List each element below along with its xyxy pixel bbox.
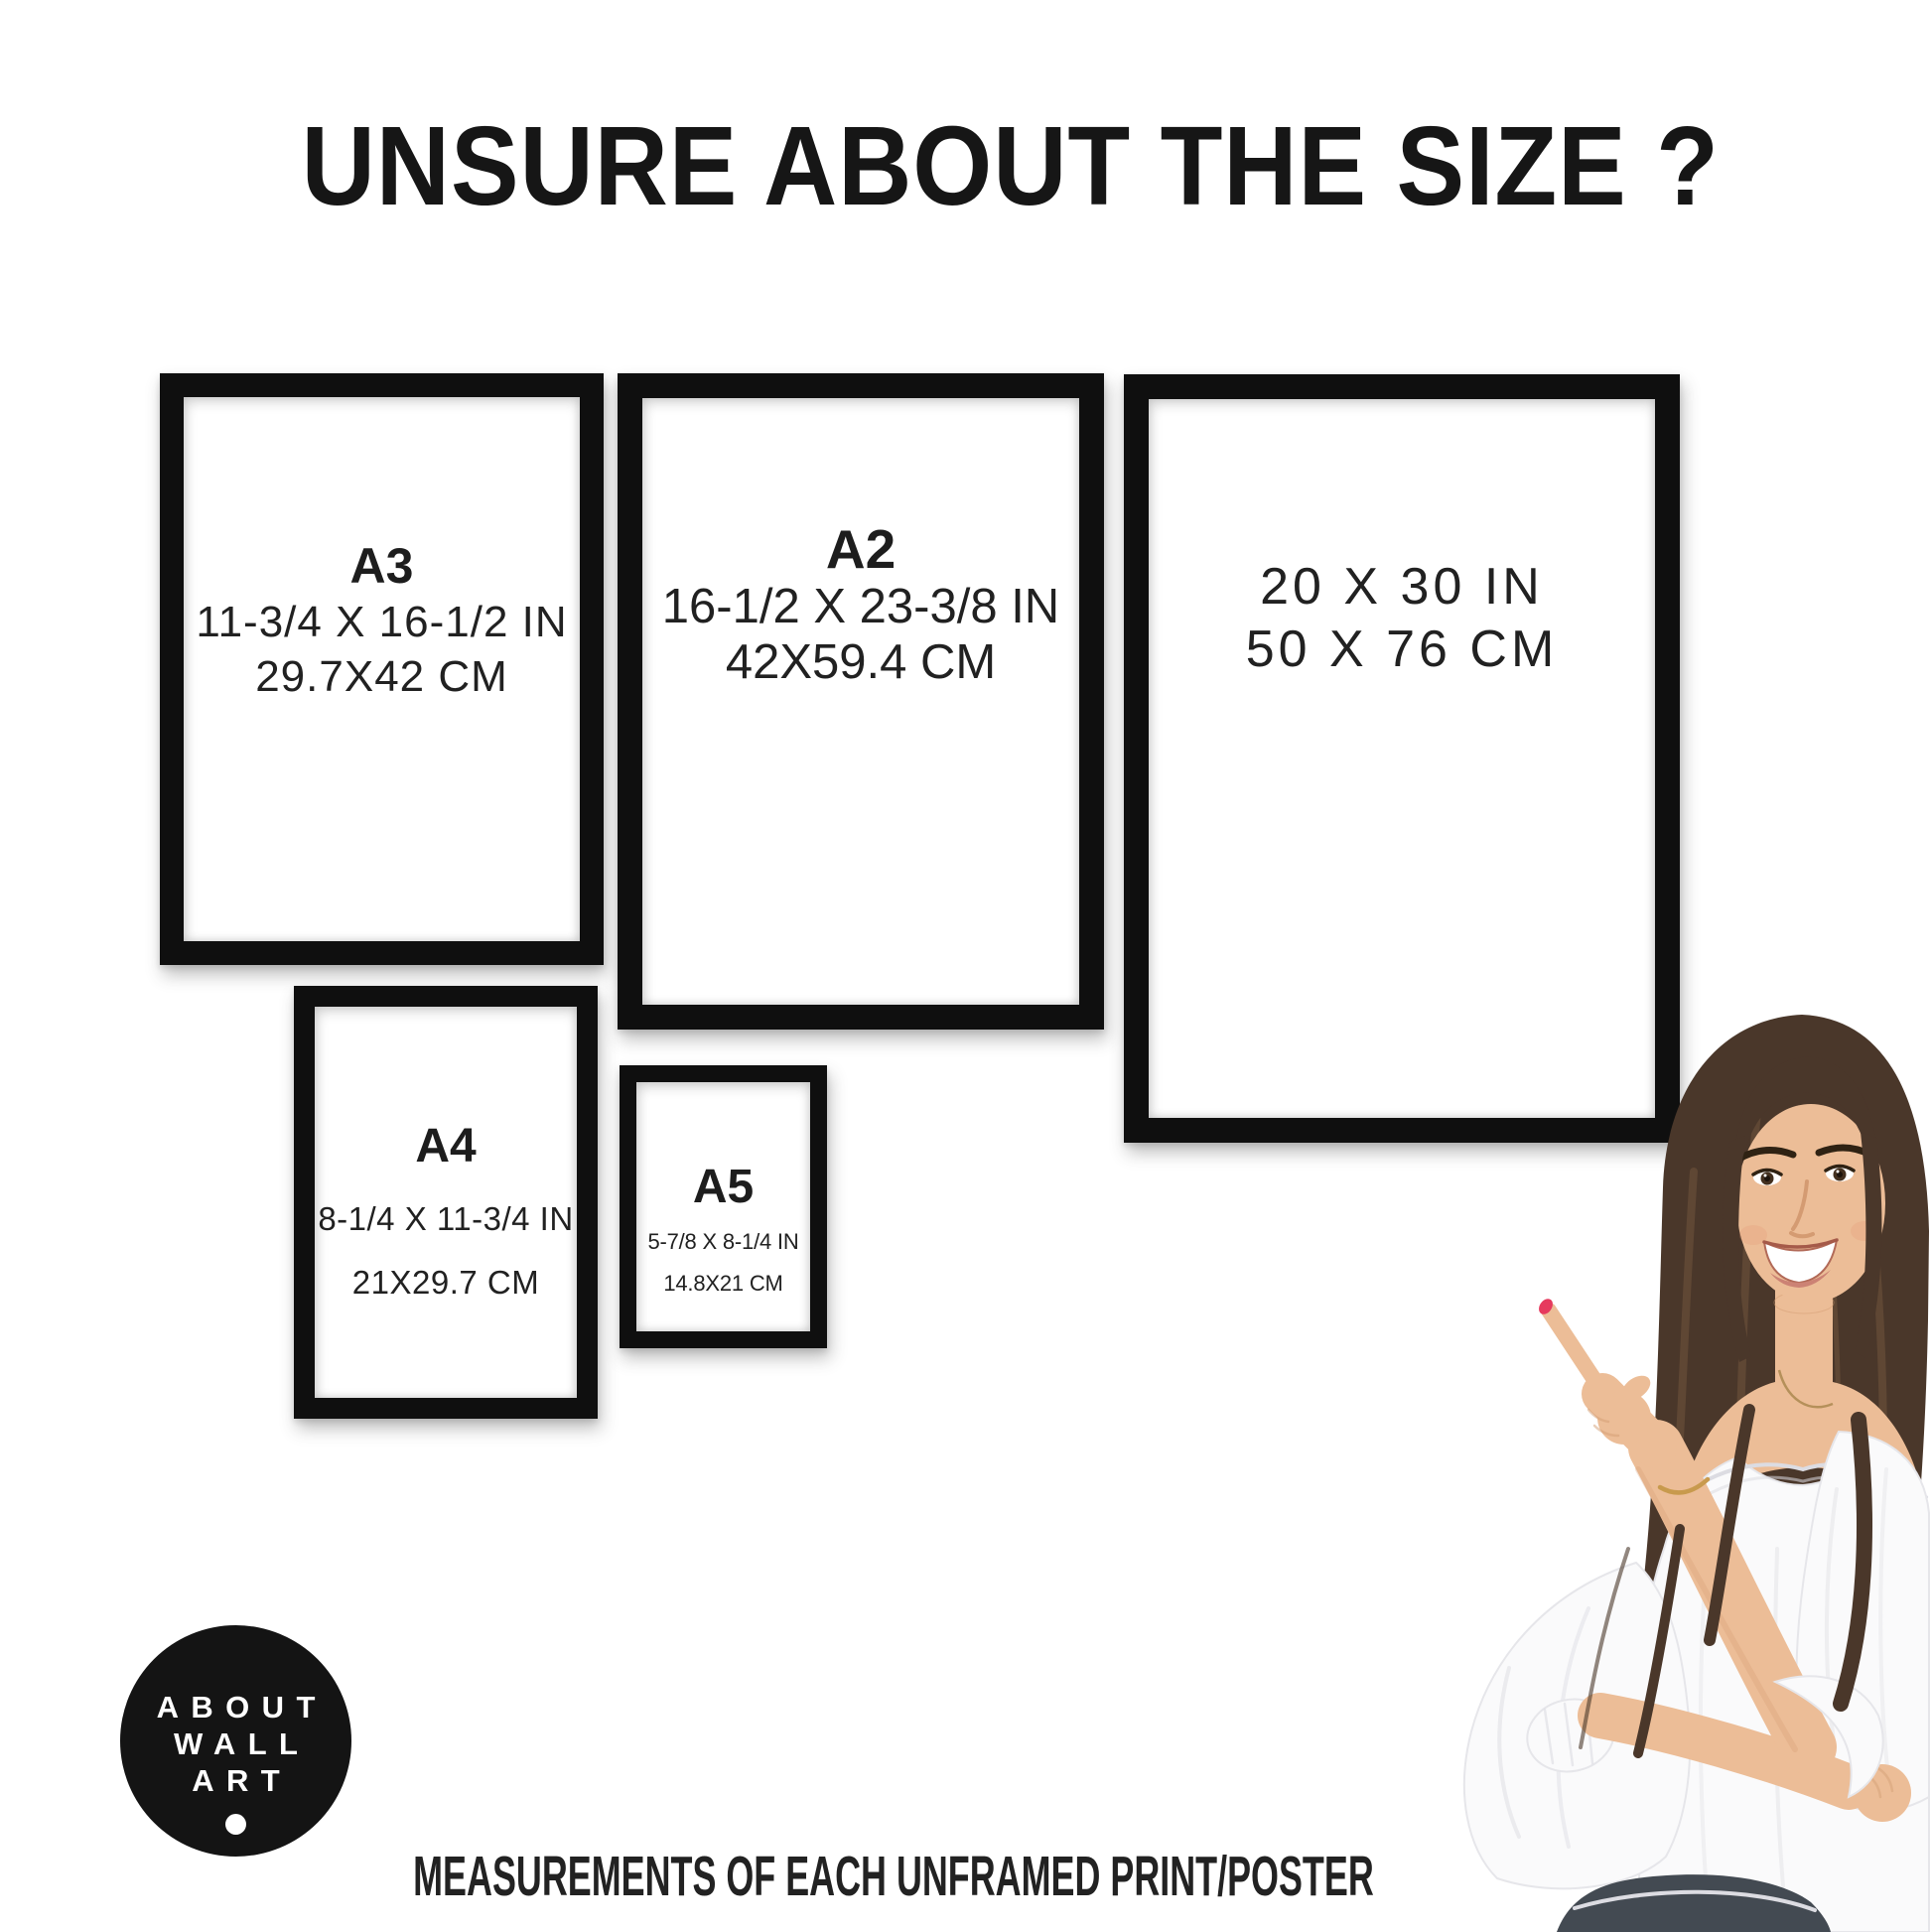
frame-a2-size-cm: 42X59.4 CM [642,634,1079,690]
frame-a3-size-inches: 11-3/4 X 16-1/2 IN [184,595,580,649]
logo-line-wall: WALL [120,1725,351,1762]
frame-a5: A5 5-7/8 X 8-1/4 IN 14.8X21 CM [620,1065,827,1348]
frame-a4-size-inches: 8-1/4 X 11-3/4 IN [315,1197,577,1241]
brand-logo: ABOUT WALL ART [120,1625,351,1857]
frame-20x30-size-cm: 50 X 76 CM [1149,619,1655,681]
frame-a3: A3 11-3/4 X 16-1/2 IN 29.7X42 CM [160,373,604,965]
frame-a3-text: A3 11-3/4 X 16-1/2 IN 29.7X42 CM [184,397,580,704]
pointing-finger [1549,1311,1606,1398]
page-title-text: UNSURE ABOUT THE SIZE ? [302,111,1720,220]
frame-a4-text: A4 8-1/4 X 11-3/4 IN 21X29.7 CM [315,1007,577,1305]
frame-a5-label: A5 [636,1160,810,1215]
frame-a5-size-cm: 14.8X21 CM [636,1269,810,1299]
woman-photo [1370,1003,1932,1932]
frame-20x30-size-inches: 20 X 30 IN [1149,556,1655,619]
frame-a2-text: A2 16-1/2 X 23-3/8 IN 42X59.4 CM [642,398,1079,690]
frame-a5-text: A5 5-7/8 X 8-1/4 IN 14.8X21 CM [636,1082,810,1299]
frame-a2-size-inches: 16-1/2 X 23-3/8 IN [642,579,1079,634]
logo-line-about: ABOUT [120,1689,351,1725]
logo-line-art: ART [120,1762,351,1799]
frame-a2-label: A2 [642,519,1079,579]
frame-a3-size-cm: 29.7X42 CM [184,649,580,704]
frame-a5-size-inches: 5-7/8 X 8-1/4 IN [636,1227,810,1257]
frame-20x30-text: 20 X 30 IN 50 X 76 CM [1149,399,1655,681]
page-title: UNSURE ABOUT THE SIZE ? [89,111,1932,220]
frame-a2: A2 16-1/2 X 23-3/8 IN 42X59.4 CM [618,373,1104,1030]
frame-a4-label: A4 [315,1118,577,1175]
size-guide-page: UNSURE ABOUT THE SIZE ? A3 11-3/4 X 16-1… [0,0,1932,1932]
eye-right [1826,1166,1854,1181]
frame-a4-size-cm: 21X29.7 CM [315,1261,577,1305]
logo-dot [225,1814,246,1835]
frame-a4: A4 8-1/4 X 11-3/4 IN 21X29.7 CM [294,986,598,1419]
frame-a3-label: A3 [184,537,580,595]
eye-left [1753,1170,1781,1185]
page-caption-text: MEASUREMENTS OF EACH UNFRAMED PRINT/POST… [413,1846,1374,1907]
